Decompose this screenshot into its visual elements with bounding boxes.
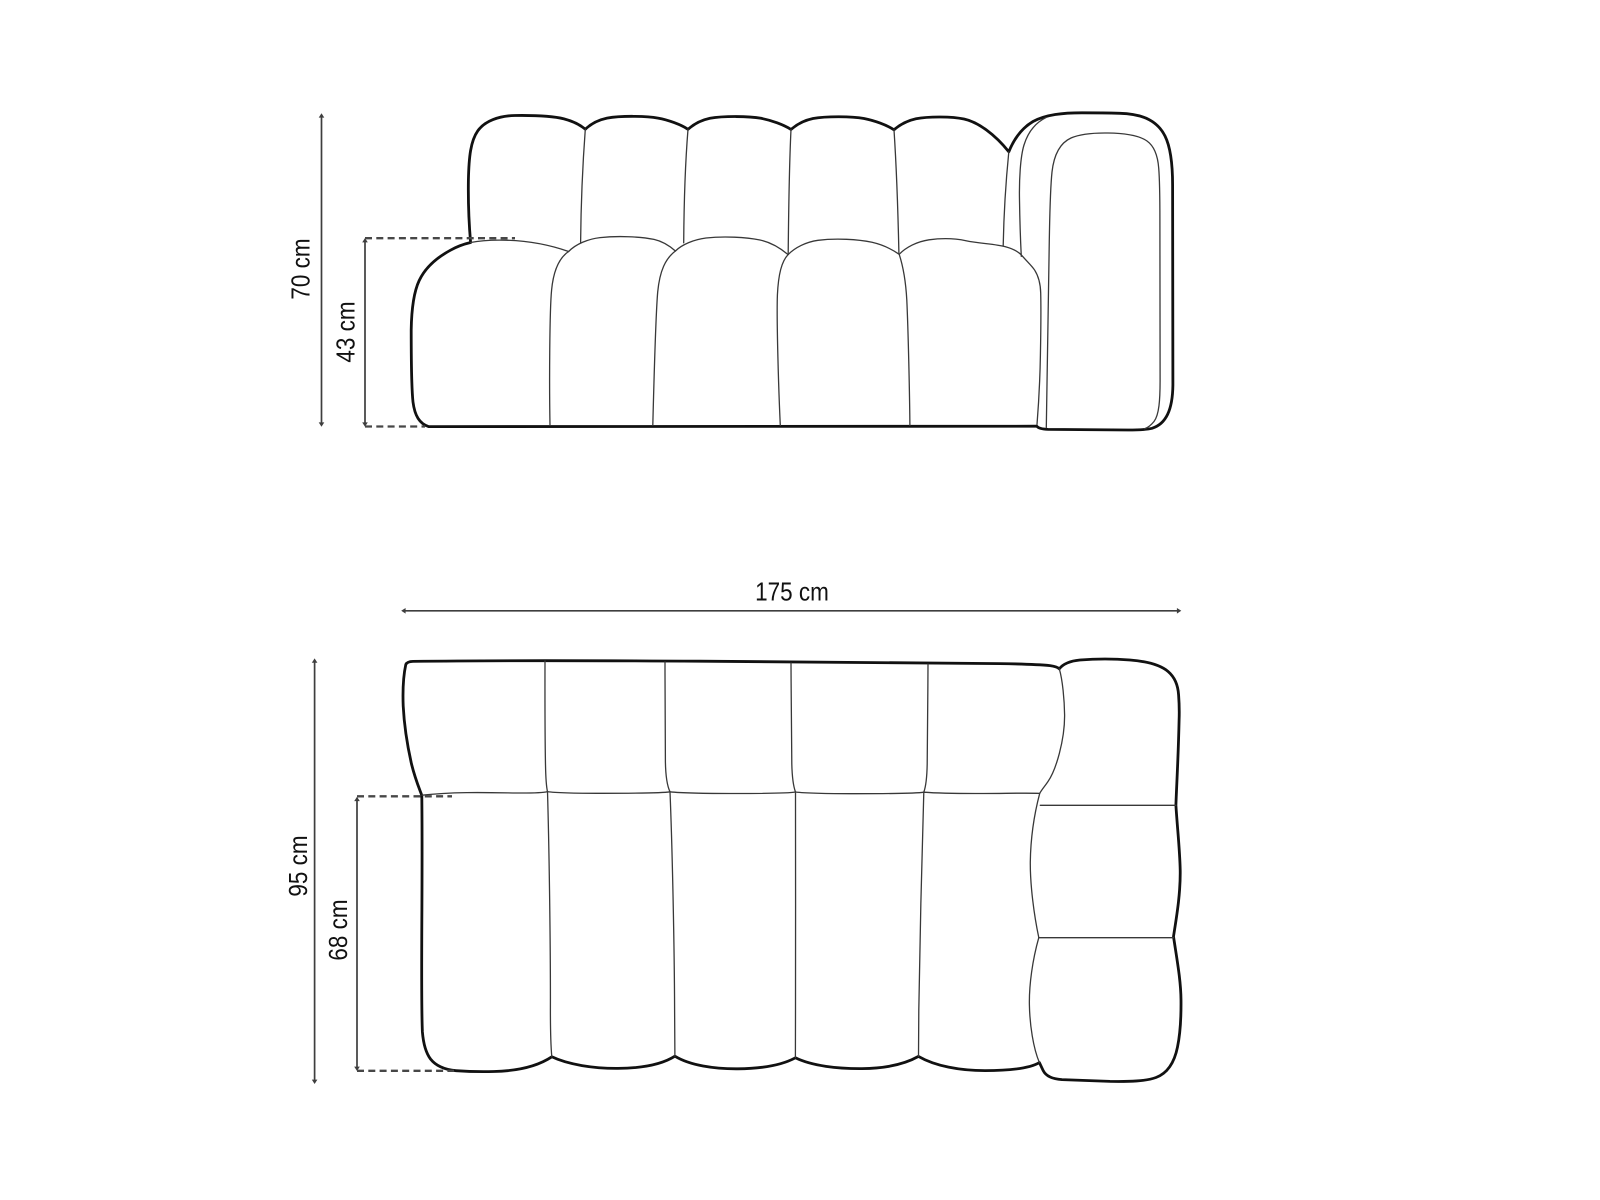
- svg-text:175 cm: 175 cm: [755, 578, 829, 607]
- svg-text:68 cm: 68 cm: [325, 899, 354, 960]
- svg-text:95 cm: 95 cm: [285, 835, 314, 896]
- svg-text:70 cm: 70 cm: [287, 238, 316, 299]
- svg-text:43 cm: 43 cm: [332, 301, 361, 362]
